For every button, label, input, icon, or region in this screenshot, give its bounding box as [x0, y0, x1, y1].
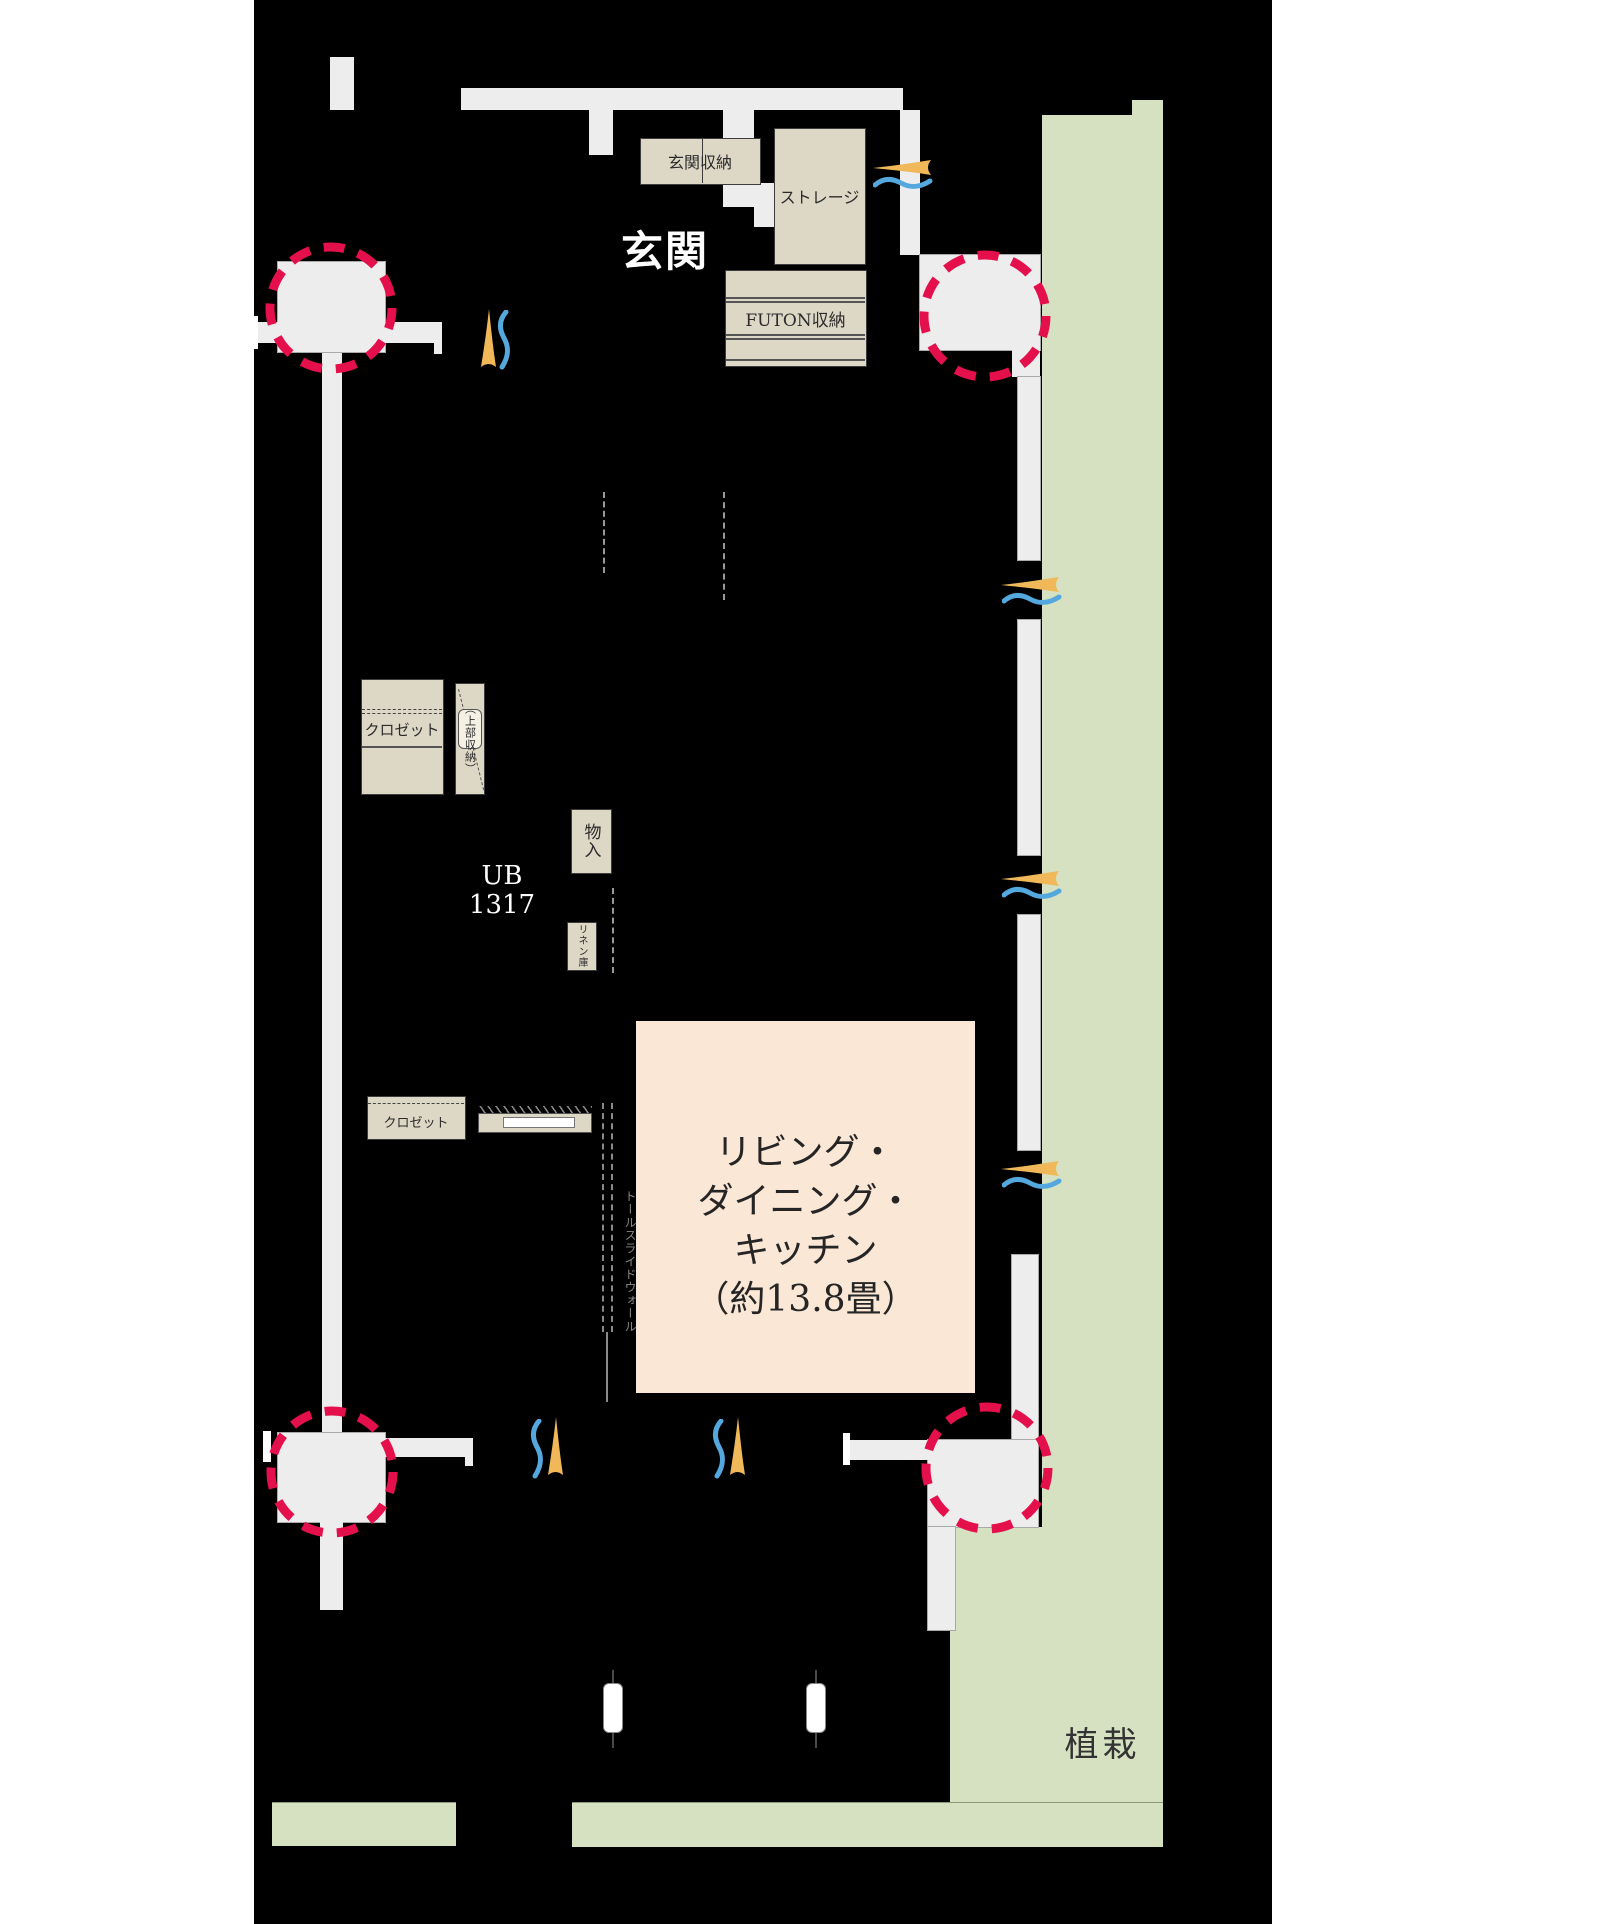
airflow-wave-icon-bottom-2	[712, 1419, 728, 1479]
wall-entrance-L-step	[754, 183, 774, 227]
planting-column-top-notch	[1042, 100, 1132, 115]
entrance-label: 玄関	[598, 224, 732, 272]
closet-upper-label-text: クロゼット	[364, 719, 439, 740]
airflow-flame-icon-upper-left	[480, 308, 498, 368]
closet-lower-label-text: クロゼット	[383, 1112, 448, 1131]
unit-bath-label-line2: 1317	[452, 891, 552, 920]
futon-line-5	[726, 359, 865, 361]
planting-lower-right-extension	[950, 1527, 1042, 1847]
entrance-storage-box: 玄関収納	[640, 138, 761, 185]
pillar-circle-top-right	[915, 246, 1055, 386]
closet-upper-box: クロゼット	[361, 679, 444, 795]
closet-upper-label: クロゼット	[362, 714, 442, 745]
counter-box	[478, 1113, 592, 1133]
airflow-flame-icon-storage	[872, 159, 932, 177]
airflow-flame-icon-bottom-2	[729, 1416, 747, 1476]
monoire-box: 物入	[571, 809, 612, 874]
wall-right-segment-a	[1018, 377, 1040, 560]
floor-plan-canvas: 植栽 玄関収納 ストレージ	[0, 0, 1600, 1924]
tall-slide-wall-dash-2	[611, 1103, 613, 1332]
dashed-line-linen	[612, 888, 614, 973]
dashed-line-upper-2	[723, 492, 725, 600]
dashed-line-upper-1	[603, 492, 605, 573]
airflow-flame-icon-bottom-1	[547, 1416, 565, 1476]
linen-label: リネン庫	[568, 923, 595, 969]
wall-right-segment-b	[1018, 620, 1040, 855]
linen-label-text: リネン庫	[574, 924, 589, 968]
ldk-label: リビング・ ダイニング・ キッチン （約13.8畳）	[636, 1128, 975, 1324]
planting-label-text: 植栽	[1065, 1717, 1141, 1766]
futon-line-1	[726, 297, 865, 299]
sliding-door-1-leaf	[603, 1683, 623, 1733]
futon-line-4	[726, 338, 865, 340]
linen-box: リネン庫	[567, 922, 597, 971]
futon-storage-label-text: FUTON収納	[745, 306, 845, 331]
storage-label: ストレージ	[775, 181, 864, 211]
airflow-wave-icon-upper-left	[497, 310, 513, 370]
entrance-storage-label-text: 玄関収納	[668, 149, 732, 173]
closet-lower-box: クロゼット	[367, 1096, 466, 1140]
storage-box: ストレージ	[774, 128, 866, 265]
entrance-label-text: 玄関	[621, 218, 709, 279]
monoire-label-text: 物入	[579, 823, 604, 859]
tall-slide-wall-dash-1	[602, 1103, 604, 1332]
planting-column-right	[1042, 100, 1163, 1847]
planting-label: 植栽	[1042, 1720, 1163, 1762]
tall-slide-wall-label: トールスライドウォール	[622, 1190, 639, 1355]
airflow-wave-icon-storage	[873, 176, 933, 192]
storage-label-text: ストレージ	[780, 184, 860, 208]
pillar-bottom-right-door-tick	[843, 1433, 850, 1465]
ldk-label-line2: ダイニング・	[636, 1177, 975, 1226]
airflow-wave-icon-right-1	[1002, 592, 1062, 608]
closet-upper-solid-line	[362, 746, 442, 748]
pillar-top-left-door-tick	[251, 316, 258, 349]
pillar-top-left-arm-right-jamb	[434, 343, 442, 354]
unit-bath-label: UB 1317	[452, 862, 552, 920]
closet-upper-dash-1	[362, 709, 442, 710]
sliding-door-2-leaf	[806, 1683, 826, 1733]
counter-hatch	[478, 1106, 592, 1113]
pillar-circle-top-left	[261, 238, 401, 378]
airflow-wave-icon-right-3	[1002, 1176, 1062, 1192]
upper-storage-label: （上部収納）	[456, 690, 483, 788]
airflow-wave-icon-right-2	[1002, 886, 1062, 902]
airflow-wave-icon-bottom-1	[530, 1419, 546, 1479]
monoire-label: 物入	[572, 810, 610, 872]
pillar-circle-bottom-left	[262, 1402, 402, 1542]
ldk-label-line4: （約13.8畳）	[636, 1275, 975, 1324]
wall-below-pillar-bottom-right	[928, 1527, 955, 1630]
wall-top-left-stub	[330, 57, 354, 110]
entrance-storage-label: 玄関収納	[641, 139, 759, 183]
closet-lower-dash	[368, 1103, 464, 1104]
planting-strip-bottom-main	[572, 1802, 1163, 1847]
counter-sink	[503, 1117, 575, 1128]
upper-storage-label-text: （上部収納）	[462, 703, 478, 775]
ldk-label-line3: キッチン	[636, 1226, 975, 1275]
tall-slide-wall-solid	[606, 1332, 608, 1402]
wall-stub-below-top-wall	[589, 110, 613, 155]
futon-storage-label: FUTON収納	[726, 302, 865, 334]
pillar-bottom-left-arm-jamb	[465, 1457, 473, 1466]
ldk-label-line1: リビング・	[636, 1128, 975, 1177]
wall-right-segment-c	[1018, 915, 1040, 1150]
futon-storage-box: FUTON収納	[725, 270, 867, 367]
upper-storage-box: （上部収納）	[455, 683, 485, 795]
pillar-circle-bottom-right	[917, 1398, 1057, 1538]
futon-line-3	[726, 334, 865, 336]
wall-left-long-vertical	[322, 352, 342, 1433]
planting-strip-bottom-left	[272, 1802, 456, 1846]
unit-bath-label-line1: UB	[452, 862, 552, 891]
wall-top-horizontal	[461, 88, 903, 110]
closet-lower-label: クロゼット	[368, 1105, 464, 1137]
tall-slide-wall-label-text: トールスライドウォール	[623, 1190, 637, 1333]
